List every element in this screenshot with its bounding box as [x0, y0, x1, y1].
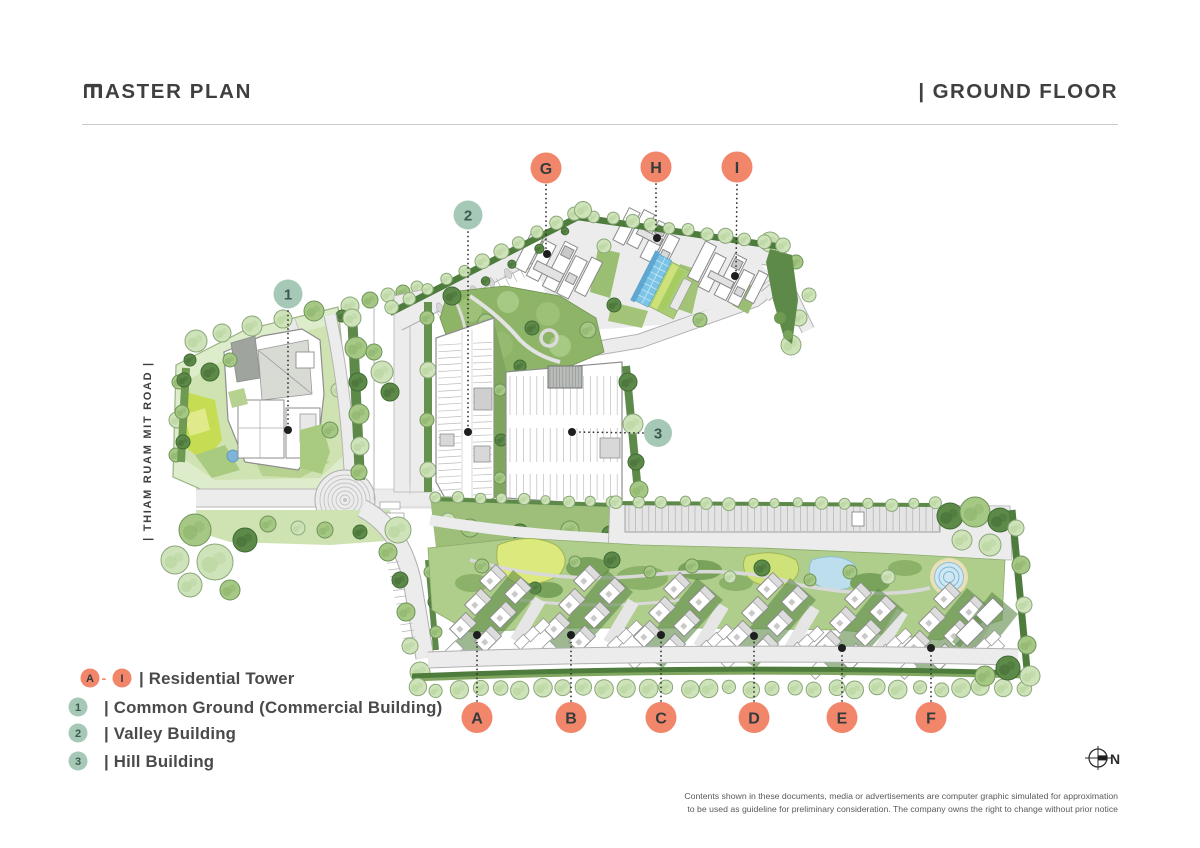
svg-text:-: - — [102, 670, 107, 686]
svg-text:| Residential Tower: | Residential Tower — [139, 669, 295, 688]
svg-text:1: 1 — [75, 702, 81, 714]
svg-text:C: C — [655, 710, 667, 727]
svg-text:| Valley Building: | Valley Building — [104, 724, 236, 743]
svg-text:E: E — [837, 710, 848, 727]
svg-text:A: A — [471, 710, 483, 727]
svg-text:ASTER PLAN: ASTER PLAN — [105, 80, 252, 103]
svg-text:D: D — [748, 710, 760, 727]
svg-text:F: F — [926, 710, 936, 727]
svg-text:| THIAM RUAM MIT ROAD |: | THIAM RUAM MIT ROAD | — [142, 361, 154, 541]
svg-text:1: 1 — [284, 286, 292, 303]
svg-text:3: 3 — [654, 425, 662, 442]
svg-text:2: 2 — [75, 728, 81, 740]
svg-text:H: H — [650, 160, 662, 177]
svg-text:I: I — [735, 160, 739, 177]
svg-text:N: N — [1110, 751, 1120, 767]
svg-text:B: B — [565, 710, 577, 727]
svg-text:to be used as guideline for pr: to be used as guideline for preliminary … — [687, 804, 1118, 814]
svg-text:3: 3 — [75, 756, 81, 768]
svg-text:2: 2 — [464, 207, 472, 224]
svg-text:I: I — [120, 673, 123, 685]
svg-text:G: G — [540, 161, 552, 178]
svg-text:| Hill Building: | Hill Building — [104, 752, 214, 771]
svg-text:Contents shown in these docum: Contents shown in these documents, media… — [684, 791, 1118, 801]
svg-text:| GROUND FLOOR: | GROUND FLOOR — [918, 80, 1118, 103]
svg-text:| Common Ground (Commercial Bu: | Common Ground (Commercial Building) — [104, 698, 442, 717]
svg-text:A: A — [86, 673, 94, 685]
